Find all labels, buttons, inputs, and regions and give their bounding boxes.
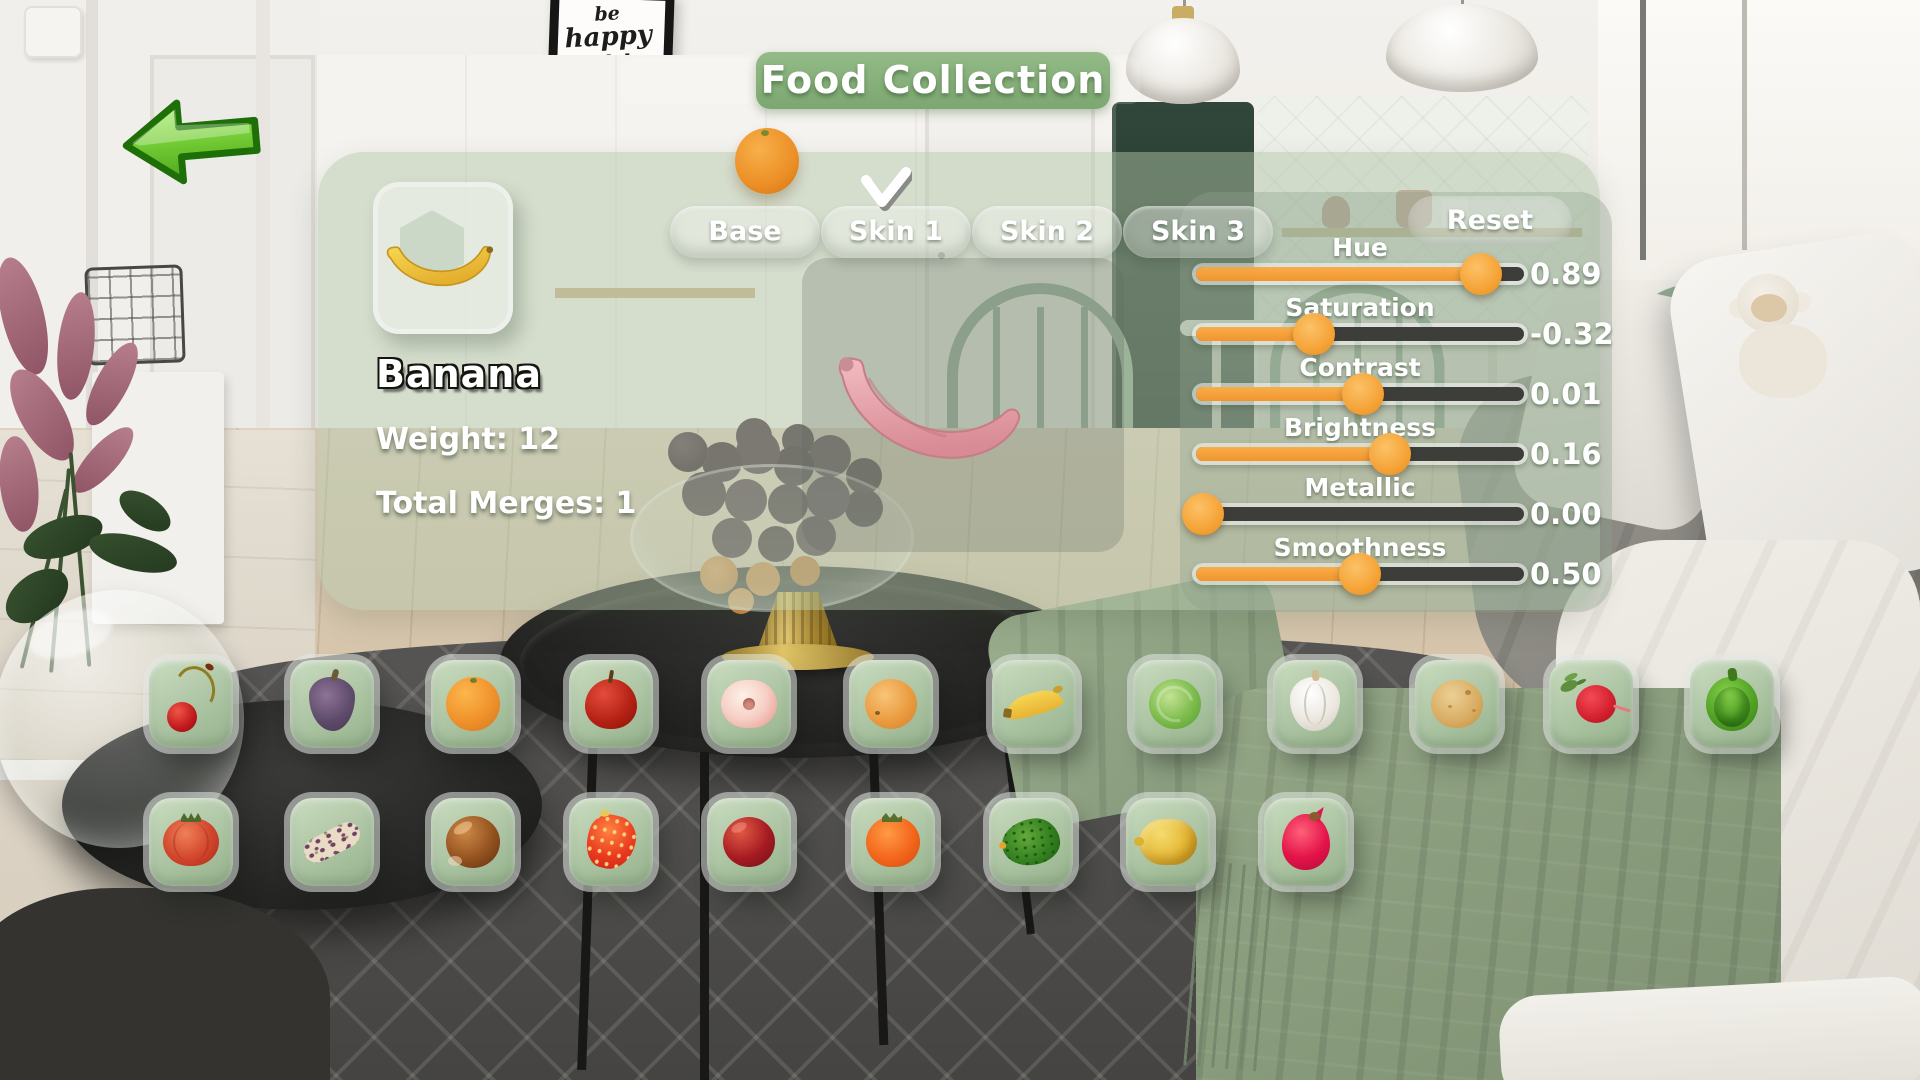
dragonfruit-icon xyxy=(1282,814,1330,870)
citron-icon xyxy=(1139,819,1197,865)
slider-brightness-fill xyxy=(1196,447,1390,461)
collection-item-radish[interactable] xyxy=(1549,660,1633,748)
window-frame xyxy=(1742,0,1747,250)
slider-hue-handle[interactable] xyxy=(1460,253,1502,295)
pink-banana-icon xyxy=(821,327,1044,484)
cherry-icon xyxy=(167,702,197,732)
slider-metallic-handle[interactable] xyxy=(1182,493,1224,535)
apple-icon xyxy=(585,679,637,729)
collection-item-citron[interactable] xyxy=(1126,798,1210,886)
collection-item-garlic[interactable] xyxy=(1273,660,1357,748)
tomato-icon xyxy=(163,818,219,866)
slider-smoothness-value: 0.50 xyxy=(1530,554,1620,594)
persimmon-icon xyxy=(866,817,920,867)
slider-smoothness-fill xyxy=(1196,567,1360,581)
collection-item-potato[interactable] xyxy=(1415,660,1499,748)
garlic-icon xyxy=(1290,677,1340,731)
flat-peach-icon xyxy=(721,680,777,728)
selected-item-name: Banana xyxy=(376,352,542,396)
collection-item-strawberry[interactable] xyxy=(569,798,653,886)
collection-item-orange[interactable] xyxy=(431,660,515,748)
table-leg xyxy=(700,752,709,1080)
collection-item-persimmon[interactable] xyxy=(851,798,935,886)
collection-item-banana[interactable] xyxy=(992,660,1076,748)
reset-label: Reset xyxy=(1408,196,1572,246)
potato-icon xyxy=(1431,680,1483,728)
floating-orange-icon xyxy=(735,128,799,194)
slider-hue-value: 0.89 xyxy=(1530,254,1620,294)
avocado-icon xyxy=(999,815,1063,869)
back-button[interactable] xyxy=(114,88,267,192)
apricot-icon xyxy=(865,679,917,729)
slider-brightness-label: Brightness xyxy=(1180,413,1540,443)
skin-preview-banana xyxy=(821,327,1044,484)
slider-metallic-track[interactable] xyxy=(1196,507,1524,521)
collection-item-cherry[interactable] xyxy=(149,660,233,748)
selected-item-merges: Total Merges: 1 xyxy=(376,486,636,521)
title-banner: Food Collection xyxy=(756,52,1110,109)
collection-item-dragonfruit[interactable] xyxy=(1264,798,1348,886)
collection-item-apple[interactable] xyxy=(569,660,653,748)
slider-saturation-handle[interactable] xyxy=(1293,313,1335,355)
collection-item-apricot[interactable] xyxy=(849,660,933,748)
slider-metallic-value: 0.00 xyxy=(1530,494,1620,534)
fig-icon xyxy=(309,677,355,731)
slider-brightness-handle[interactable] xyxy=(1369,433,1411,475)
collection-item-chestnut[interactable] xyxy=(431,798,515,886)
back-arrow-icon xyxy=(114,88,267,192)
page-title: Food Collection xyxy=(756,52,1110,109)
monkey-body xyxy=(1739,324,1827,398)
plush-monkey xyxy=(1735,268,1845,398)
collection-item-corn[interactable] xyxy=(290,798,374,886)
tab-skin-3[interactable]: Skin 3 xyxy=(1123,206,1273,258)
throw-tassels xyxy=(1183,861,1285,1073)
tab-skin-1[interactable]: Skin 1 xyxy=(821,206,971,258)
chestnut-icon xyxy=(446,816,500,868)
tab-label: Base xyxy=(670,206,820,258)
green-pepper-icon xyxy=(1706,677,1758,731)
tab-label: Skin 1 xyxy=(821,206,971,258)
banana-icon xyxy=(1003,685,1065,722)
collection-item-tomato[interactable] xyxy=(149,798,233,886)
strawberry-icon xyxy=(581,810,641,874)
slider-saturation-value: -0.32 xyxy=(1530,314,1620,354)
selected-item-thumbnail xyxy=(373,182,513,334)
radish-icon xyxy=(1576,685,1616,723)
nectarine-icon xyxy=(723,817,775,867)
orange-icon xyxy=(446,677,500,731)
light-switch xyxy=(24,6,82,58)
selected-item-weight: Weight: 12 xyxy=(376,422,560,457)
orange-stem xyxy=(761,130,769,136)
collection-item-brussels-sprout[interactable] xyxy=(1133,660,1217,748)
tab-label: Skin 3 xyxy=(1123,206,1273,258)
tab-base[interactable]: Base xyxy=(670,206,820,258)
collection-item-avocado[interactable] xyxy=(989,798,1073,886)
slider-contrast-value: 0.01 xyxy=(1530,374,1620,414)
corn-icon xyxy=(300,817,365,867)
tab-label: Skin 2 xyxy=(972,206,1122,258)
slider-contrast-handle[interactable] xyxy=(1342,373,1384,415)
selected-skin-checkmark-icon xyxy=(860,166,912,212)
slider-metallic-label: Metallic xyxy=(1180,473,1540,503)
reset-button[interactable]: Reset xyxy=(1408,196,1572,246)
banana-thumbnail-icon xyxy=(376,206,509,310)
slider-brightness-value: 0.16 xyxy=(1530,434,1620,474)
slider-hue-fill xyxy=(1196,267,1481,281)
collection-item-nectarine[interactable] xyxy=(707,798,791,886)
tab-skin-2[interactable]: Skin 2 xyxy=(972,206,1122,258)
slider-smoothness-handle[interactable] xyxy=(1339,553,1381,595)
collection-item-fig[interactable] xyxy=(290,660,374,748)
collection-item-flat-peach[interactable] xyxy=(707,660,791,748)
window-frame xyxy=(1640,0,1646,260)
brussels-sprout-icon xyxy=(1149,679,1201,729)
monkey-face xyxy=(1751,294,1787,322)
slider-contrast-fill xyxy=(1196,387,1363,401)
collection-item-green-pepper[interactable] xyxy=(1690,660,1774,748)
slider-saturation-label: Saturation xyxy=(1180,293,1540,323)
